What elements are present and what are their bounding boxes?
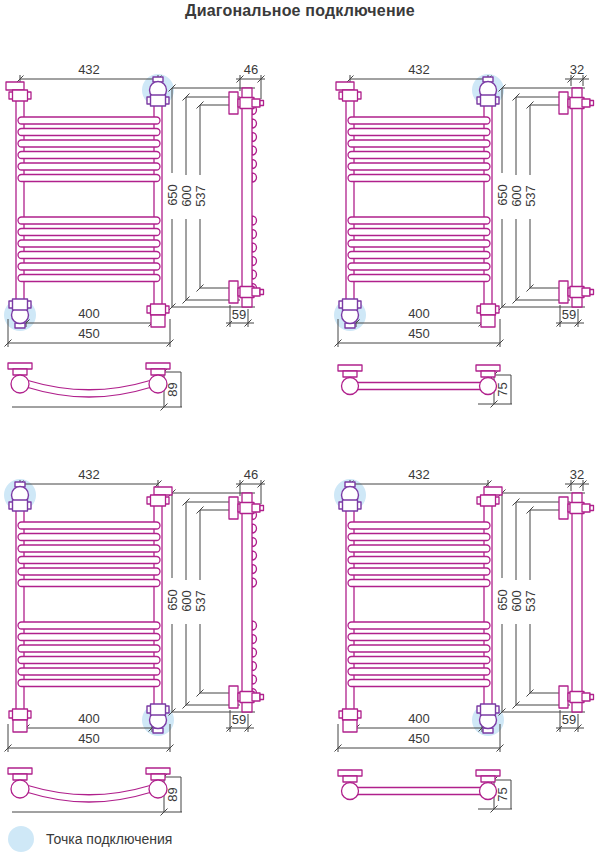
cap-fitting <box>9 709 31 732</box>
page-title: Диагональное подключение <box>0 2 600 20</box>
legend: Точка подключения <box>8 826 172 852</box>
cap-fitting <box>147 304 169 327</box>
side-view <box>229 62 265 307</box>
quadrant-top-right <box>330 55 600 420</box>
cap-fitting <box>477 487 502 506</box>
drawing-page: Диагональное подключение <box>0 0 600 855</box>
quadrant-bottom-right <box>330 460 600 825</box>
side-view <box>559 62 594 307</box>
quadrant-top-left <box>0 55 270 420</box>
top-view <box>8 768 182 816</box>
cap-fitting <box>336 82 361 101</box>
cap-fitting <box>477 304 499 327</box>
legend-label: Точка подключения <box>46 831 172 847</box>
top-view <box>338 770 512 813</box>
side-view <box>559 467 594 712</box>
top-view <box>338 365 512 408</box>
cap-fitting <box>339 709 361 732</box>
side-view <box>229 467 265 712</box>
quadrant-bottom-left <box>0 460 270 825</box>
cap-fitting <box>6 82 31 101</box>
top-view <box>8 363 182 411</box>
connection-point-marker <box>8 826 34 852</box>
cap-fitting <box>147 487 172 506</box>
